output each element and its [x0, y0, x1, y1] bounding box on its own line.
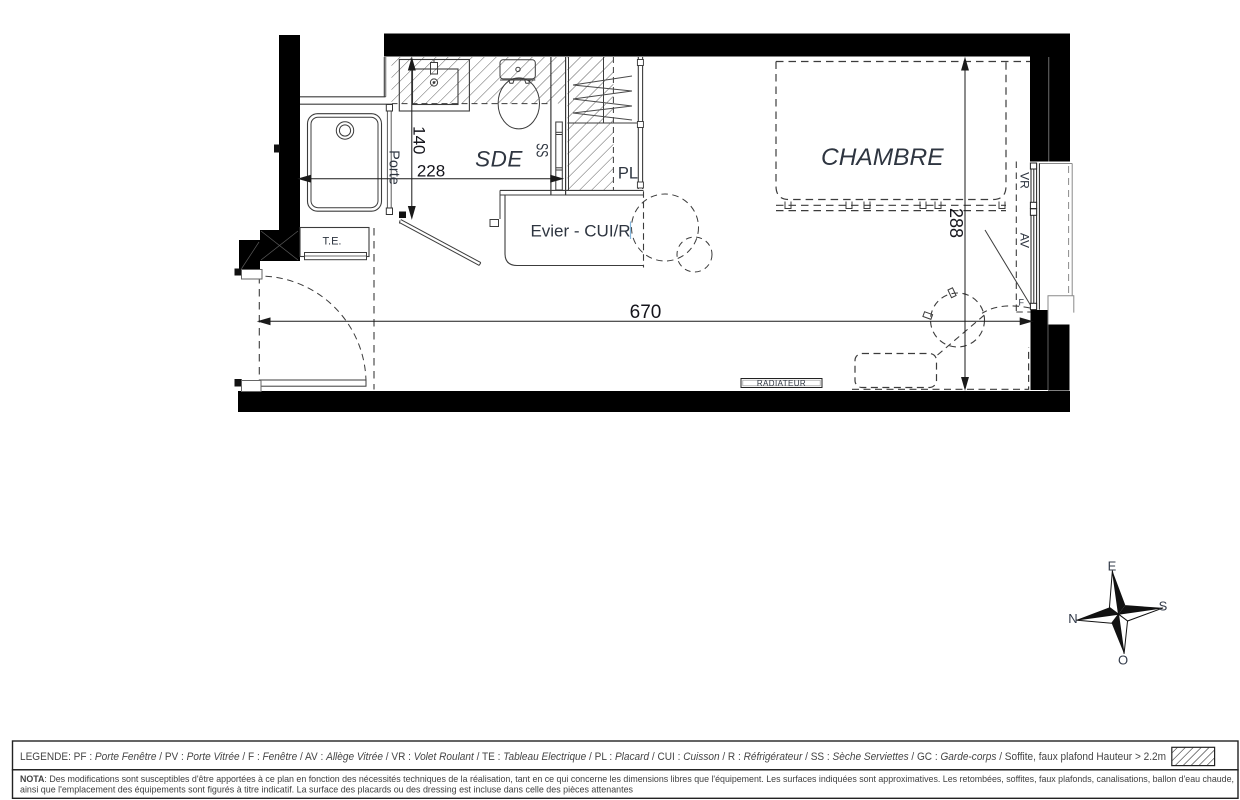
svg-text:NOTA: Des modifications sont s: NOTA: Des modifications sont susceptible… — [20, 773, 1234, 784]
svg-text:Porte: Porte — [386, 150, 402, 185]
svg-text:ainsi que l'emplacement des éq: ainsi que l'emplacement des équipements … — [20, 784, 633, 795]
svg-text:CHAMBRE: CHAMBRE — [821, 144, 944, 171]
svg-text:670: 670 — [630, 302, 662, 323]
svg-text:140: 140 — [410, 126, 429, 154]
svg-text:T.E.: T.E. — [323, 235, 342, 247]
svg-text:LEGENDE: PF : Porte Fenêtre /: LEGENDE: PF : Porte Fenêtre / PV : Porte… — [20, 751, 1166, 763]
svg-text:288: 288 — [946, 208, 966, 238]
svg-text:Evier - CUI/R: Evier - CUI/R — [530, 222, 630, 241]
svg-text:228: 228 — [417, 162, 445, 181]
svg-text:PL: PL — [618, 165, 638, 183]
svg-text:AV: AV — [1017, 233, 1031, 248]
svg-text:S: S — [1159, 599, 1168, 614]
svg-text:VR: VR — [1017, 172, 1031, 189]
svg-text:SDE: SDE — [475, 147, 523, 172]
svg-text:O: O — [1118, 653, 1128, 668]
svg-text:E: E — [1108, 559, 1117, 574]
svg-text:SS: SS — [533, 143, 552, 157]
svg-text:N: N — [1068, 611, 1077, 626]
svg-text:F: F — [1019, 298, 1025, 308]
svg-text:RADIATEUR: RADIATEUR — [757, 379, 806, 388]
